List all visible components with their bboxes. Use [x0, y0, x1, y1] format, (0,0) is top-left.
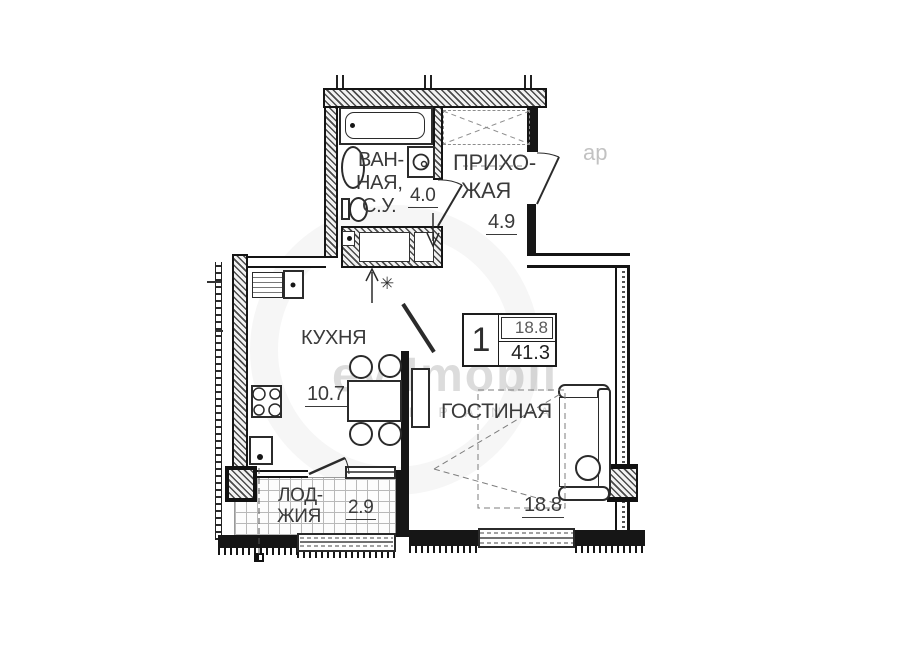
hallway-area-value: 4.9 — [486, 212, 517, 235]
bathroom-label-line2: НАЯ, — [356, 173, 403, 193]
plan-linework — [0, 0, 904, 672]
apartment-info-box: 1 18.8 41.3 — [462, 313, 557, 367]
diagonal-wall — [403, 304, 434, 352]
kitchen-label: КУХНЯ — [301, 328, 366, 348]
bathroom-label-line1: ВАН- — [358, 150, 404, 170]
living-area-total: 18.8 — [501, 317, 553, 339]
loggia-door-leaf — [309, 458, 345, 474]
floor-plan: ey Imobil C O M P A N I A ар — [0, 0, 904, 672]
stove-burners — [253, 388, 281, 416]
vent-symbol-icon: ✳ — [380, 274, 394, 294]
loggia-glazing-lines — [300, 538, 393, 546]
living-area-value: 18.8 — [522, 495, 564, 518]
loggia-area-value: 2.9 — [346, 498, 376, 520]
vent-arrow-up — [366, 269, 378, 303]
bathroom-label-line3: С.У. — [362, 196, 396, 216]
entrance-door-leaf — [537, 157, 559, 204]
cabinet-knob-dot — [257, 454, 263, 460]
rooms-count: 1 — [464, 315, 499, 365]
living-window-glazing — [480, 533, 573, 543]
loggia-label-line1: ЛОД- — [278, 486, 323, 505]
kitchen-area-value: 10.7 — [305, 384, 347, 407]
bathroom-door-leaf — [438, 185, 462, 226]
bathroom-door-arc — [438, 180, 462, 185]
total-area: 41.3 — [499, 341, 555, 365]
loggia-label-line2: ЖИЯ — [277, 507, 321, 526]
entry-arrow-down — [427, 213, 439, 246]
hallway-label-line1: ПРИХО- — [453, 152, 536, 174]
sink-faucet-dot — [291, 283, 296, 288]
hallway-label-line2: ЖАЯ — [461, 180, 511, 202]
washer-drum-icon — [414, 155, 429, 170]
bathroom-area-value: 4.0 — [408, 186, 438, 208]
living-label: ГОСТИНАЯ — [441, 401, 552, 422]
entrance-door-arc — [537, 153, 559, 157]
